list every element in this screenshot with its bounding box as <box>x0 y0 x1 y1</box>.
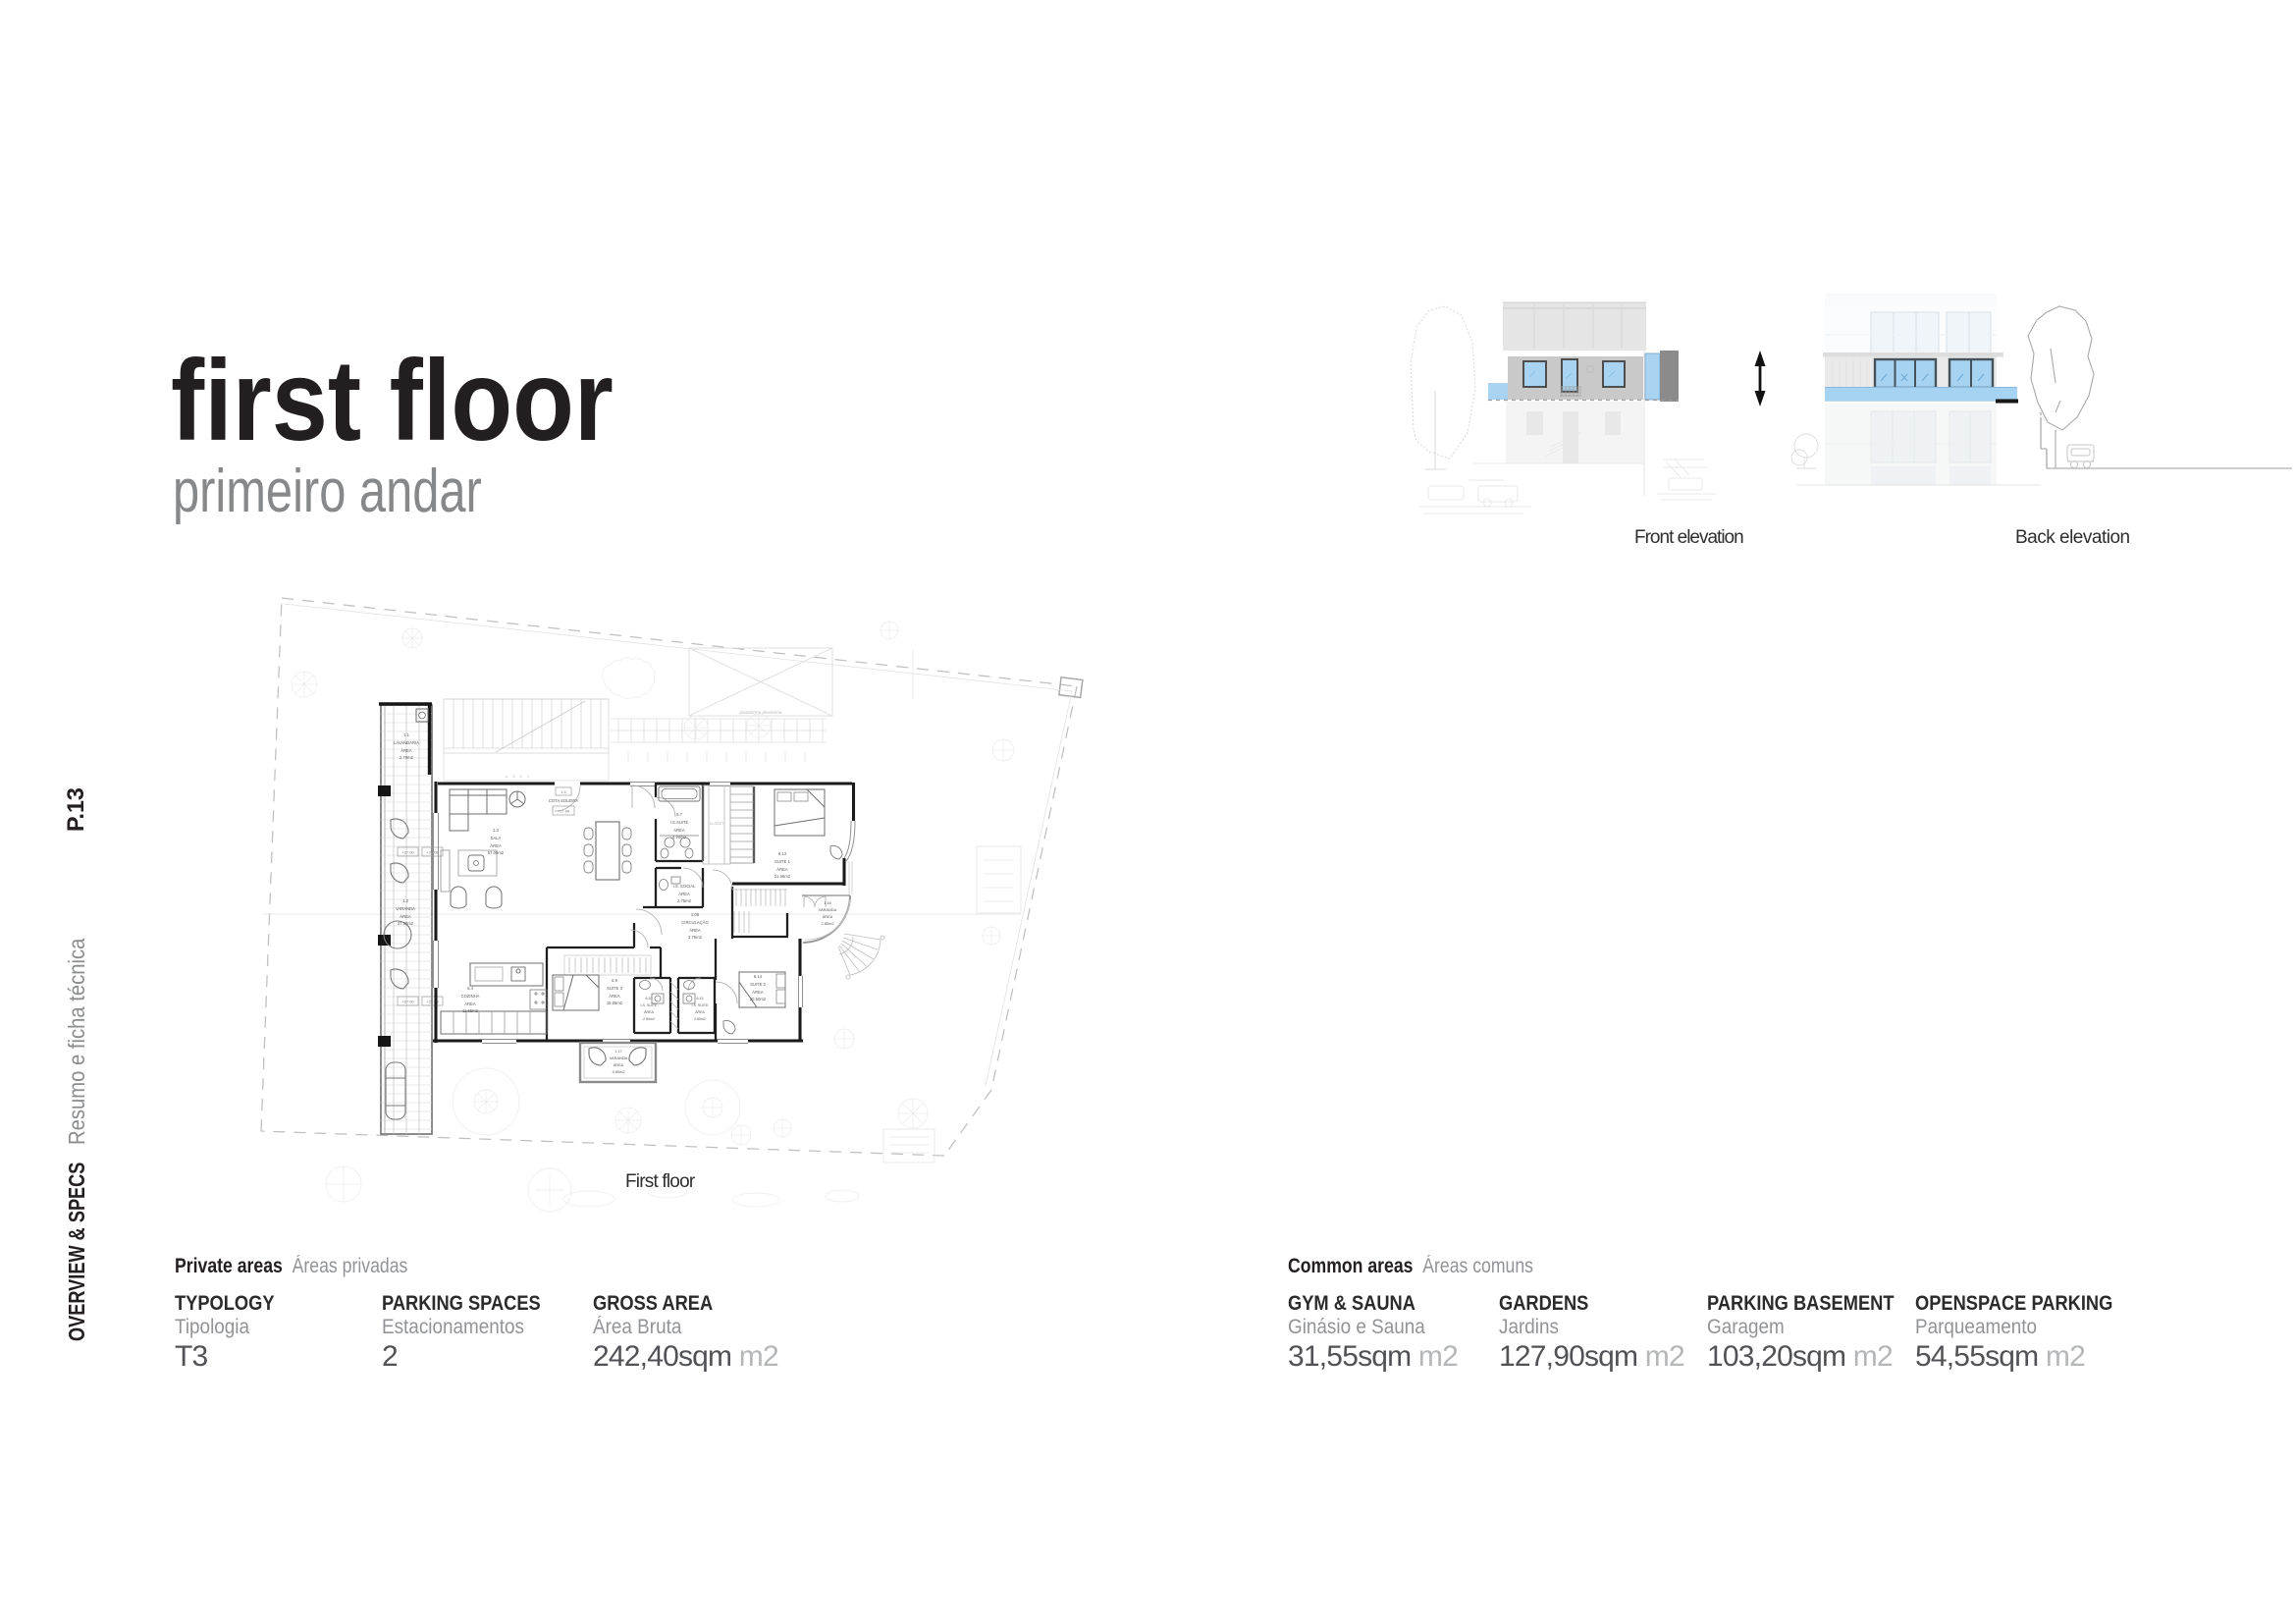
svg-text:SUITE 3: SUITE 3 <box>607 986 622 991</box>
svg-text:VARANDA: VARANDA <box>610 1056 628 1060</box>
svg-text:6.15: 6.15 <box>697 997 704 1001</box>
svg-text:ÁREA: ÁREA <box>689 928 701 933</box>
svg-text:ÁREA: ÁREA <box>823 914 833 919</box>
svg-text:6.14: 6.14 <box>754 974 763 979</box>
svg-text:SALA: SALA <box>491 836 502 840</box>
svg-text:CLOSET: CLOSET <box>710 822 724 826</box>
svg-text:+27.08: +27.08 <box>426 850 439 855</box>
svg-text:SUITE 1: SUITE 1 <box>774 859 790 864</box>
svg-text:I.S. SUITE: I.S. SUITE <box>641 1003 659 1007</box>
svg-text:1.06: 1.06 <box>691 912 700 917</box>
svg-text:I.S. SOCIAL: I.S. SOCIAL <box>673 884 696 889</box>
svg-text:4.50m2: 4.50m2 <box>613 1069 625 1074</box>
svg-text:ÁREA: ÁREA <box>673 828 685 833</box>
svg-text:11.65m2: 11.65m2 <box>462 1008 479 1013</box>
svg-text:1.1: 1.1 <box>403 732 409 737</box>
svg-text:6.10: 6.10 <box>646 997 653 1001</box>
svg-text:4.90m2: 4.90m2 <box>672 835 687 839</box>
svg-text:1.17: 1.17 <box>614 1049 622 1054</box>
svg-text:27.50m2: 27.50m2 <box>398 921 414 926</box>
svg-text:SUITE 2: SUITE 2 <box>750 982 766 987</box>
svg-text:ÁREA: ÁREA <box>776 867 788 872</box>
svg-text:4 3 2 1: 4 3 2 1 <box>506 774 531 779</box>
svg-text:COZINHA: COZINHA <box>461 994 480 999</box>
svg-text:2.75m2: 2.75m2 <box>677 898 692 903</box>
svg-text:6.4: 6.4 <box>467 986 473 991</box>
svg-text:2.80m2: 2.80m2 <box>694 1017 706 1021</box>
svg-text:2.70m2: 2.70m2 <box>400 755 414 760</box>
svg-text:1.2: 1.2 <box>402 898 408 903</box>
svg-text:VARANDA: VARANDA <box>396 906 415 911</box>
svg-text:+27.00: +27.00 <box>401 1000 414 1004</box>
svg-text:ÁREA: ÁREA <box>678 892 690 896</box>
svg-text:I.S.SUITE: I.S.SUITE <box>670 820 689 825</box>
svg-text:ÁREA: ÁREA <box>400 748 412 753</box>
svg-text:+27.00: +27.00 <box>401 850 414 855</box>
svg-text:VARANDA: VARANDA <box>819 907 837 912</box>
svg-text:ÁREA: ÁREA <box>644 1010 654 1014</box>
svg-text:6.9: 6.9 <box>612 978 617 983</box>
svg-text:15.65m2: 15.65m2 <box>607 1001 623 1005</box>
svg-text:I.S. SUITE: I.S. SUITE <box>692 1003 710 1007</box>
svg-text:6.7: 6.7 <box>676 812 682 817</box>
svg-text:21.56m2: 21.56m2 <box>774 874 791 879</box>
svg-text:1.16: 1.16 <box>824 900 831 905</box>
svg-text:57.05m2: 57.05m2 <box>488 850 505 855</box>
svg-text:20.50m2: 20.50m2 <box>750 997 767 1001</box>
svg-text:6.13: 6.13 <box>778 851 787 856</box>
svg-text:ÁREA: ÁREA <box>400 914 411 919</box>
svg-text:2.85m2: 2.85m2 <box>822 921 834 926</box>
svg-text:ÁREA: ÁREA <box>614 1062 624 1067</box>
svg-text:2.60m2: 2.60m2 <box>643 1017 655 1021</box>
svg-text:ÁREA: ÁREA <box>752 990 764 995</box>
svg-text:ÁREA: ÁREA <box>464 1001 476 1006</box>
svg-text:CIRCULAÇÃO: CIRCULAÇÃO <box>681 920 709 925</box>
svg-text:ÁREA: ÁREA <box>490 843 502 848</box>
svg-text:ÁREA: ÁREA <box>609 994 620 999</box>
svg-text:1.3: 1.3 <box>493 828 499 833</box>
svg-text:3.75m2: 3.75m2 <box>688 935 703 940</box>
svg-text:ÁREA: ÁREA <box>695 1010 705 1014</box>
svg-text:1.5: 1.5 <box>561 789 566 794</box>
svg-text:LAVANDARIA: LAVANDARIA <box>394 740 419 745</box>
